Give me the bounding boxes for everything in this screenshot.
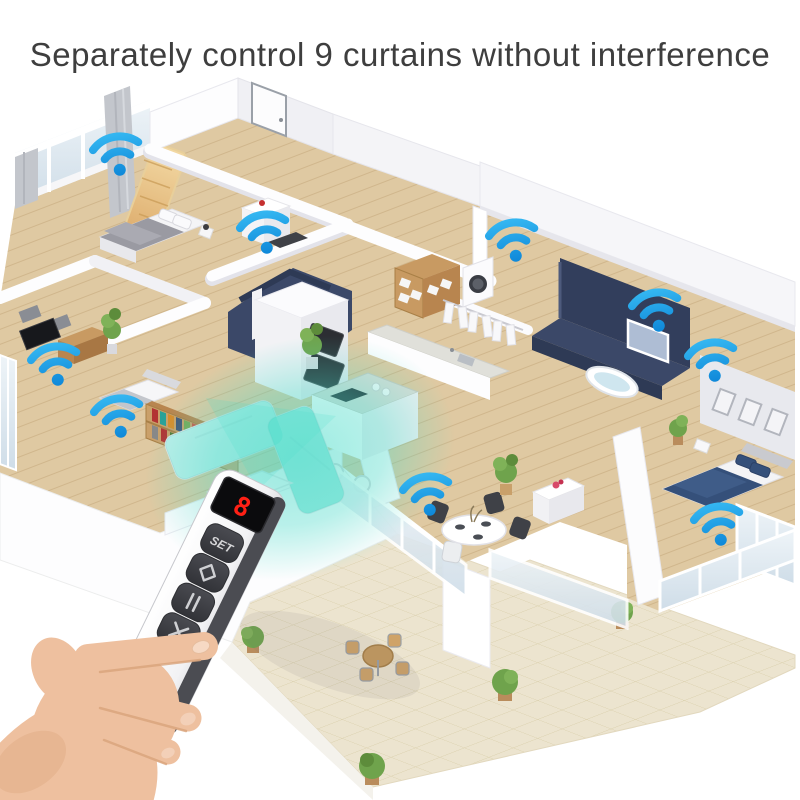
index-finger xyxy=(88,646,204,658)
left-window-band xyxy=(0,355,16,470)
flower-vase xyxy=(553,482,560,489)
curtain-left xyxy=(15,148,38,209)
dining-table xyxy=(442,515,506,545)
red-accent xyxy=(259,200,265,206)
hand xyxy=(0,622,212,800)
product-marketing-image: Separately control 9 curtains without in… xyxy=(0,0,800,800)
floorplan-illustration: 8 SET xyxy=(0,0,800,800)
